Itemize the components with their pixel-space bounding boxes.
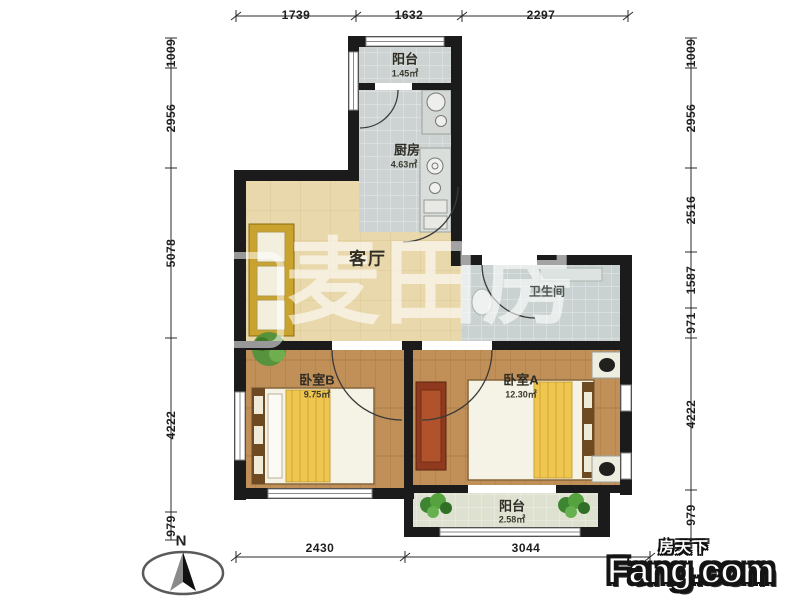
room-area-kitchen: 4.63㎡ <box>391 158 418 171</box>
dim-left-2: 2956 <box>164 104 178 133</box>
dim-right-6: 4222 <box>684 400 698 429</box>
wardrobe <box>416 382 446 470</box>
room-label-living: 客厅 <box>349 245 387 270</box>
floorplan-drawing <box>0 0 800 600</box>
room-area-balcony-top: 1.45㎡ <box>392 67 419 80</box>
dim-right-5: 971 <box>684 312 698 334</box>
dim-left-4: 4222 <box>164 411 178 440</box>
floorplan-page: 麦田房 阳台 1.45㎡ 厨房 4.63㎡ 客厅 卫生间 卧室B 9.75㎡ 卧… <box>0 0 800 600</box>
room-label-bedroom-b: 卧室B <box>299 370 334 389</box>
dim-left-1: 1009 <box>164 39 178 68</box>
room-label-bedroom-a: 卧室A <box>503 370 538 389</box>
dim-right-1: 1009 <box>684 39 698 68</box>
room-label-balcony-top: 阳台 <box>392 49 418 68</box>
dim-left-3: 5078 <box>164 239 178 268</box>
sofa <box>249 224 294 336</box>
room-area-balcony-bottom: 2.58㎡ <box>499 513 526 526</box>
room-label-kitchen: 厨房 <box>394 140 420 159</box>
dim-right-2: 2956 <box>684 104 698 133</box>
dim-bottom-1: 2430 <box>306 541 335 555</box>
room-label-bathroom: 卫生间 <box>529 283 565 300</box>
dim-right-3: 2516 <box>684 196 698 225</box>
kitchen-fixtures <box>420 90 451 232</box>
dim-bottom-2: 3044 <box>512 541 541 555</box>
dim-right-4: 1587 <box>684 266 698 295</box>
fang-logo-en: Fang.com <box>607 550 774 592</box>
dim-top-3: 2297 <box>527 8 556 22</box>
room-area-bedroom-a: 12.30㎡ <box>505 388 537 401</box>
dim-top-1: 1739 <box>282 8 311 22</box>
north-arrow <box>143 552 223 594</box>
compass-north-label: N <box>176 533 187 550</box>
dim-top-2: 1632 <box>395 8 424 22</box>
room-area-bedroom-b: 9.75㎡ <box>304 388 331 401</box>
dim-right-7: 979 <box>684 504 698 526</box>
fang-logo: 房天下 Fang.com <box>601 536 796 598</box>
